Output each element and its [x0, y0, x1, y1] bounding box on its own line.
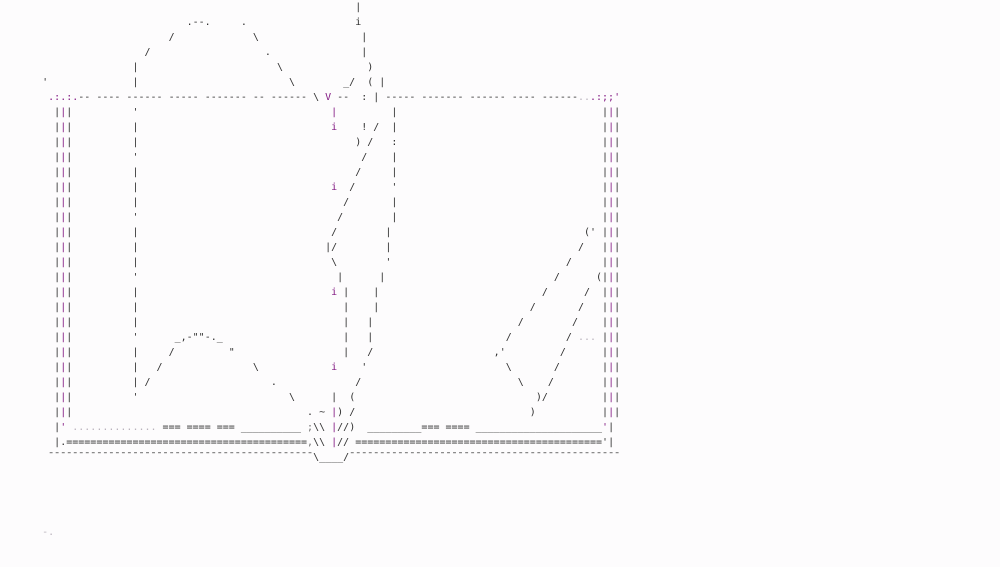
art-glyph: ----- ------- ------ ---- ------ [385, 90, 578, 105]
art-row: |\'/|||||| [0, 255, 1000, 270]
art-row [0, 510, 1000, 525]
art-glyph: ( [349, 390, 355, 405]
art-row: |'..............=== ==== ===__________;\… [0, 420, 1000, 435]
art-glyph: | [66, 210, 72, 225]
art-glyph: | [132, 135, 138, 150]
art-glyph: | [132, 180, 138, 195]
art-glyph: / [169, 345, 175, 360]
art-row: .:.:.-- ---- ------ ----- ------- -- ---… [0, 90, 1000, 105]
art-glyph: === ==== [421, 420, 469, 435]
screen: |.--..i/\|/.||\)'|\_/(|.:.:.-- ---- ----… [0, 0, 1000, 567]
art-row: |/||||||| [0, 195, 1000, 210]
art-glyph: ) [367, 60, 373, 75]
art-glyph: / [331, 225, 337, 240]
art-glyph: \ [277, 60, 283, 75]
art-glyph: _/ [343, 75, 355, 90]
art-glyph: / [578, 240, 584, 255]
art-glyph: : [361, 90, 367, 105]
art-glyph: . [241, 15, 247, 30]
art-row: -. [0, 525, 1000, 540]
art-glyph: | [66, 375, 72, 390]
art-row: |/"|/,'/|||||| [0, 345, 1000, 360]
art-glyph: / [584, 285, 590, 300]
art-glyph: \ [331, 255, 337, 270]
art-glyph: // [337, 420, 349, 435]
art-glyph: | [361, 30, 367, 45]
art-glyph: / [542, 285, 548, 300]
art-glyph: | [132, 285, 138, 300]
art-row: '|||||||| [0, 105, 1000, 120]
art-row: |||//|||||| [0, 300, 1000, 315]
art-row: /\| [0, 30, 1000, 45]
art-glyph: | [66, 345, 72, 360]
art-glyph: / [518, 315, 524, 330]
art-glyph: / [361, 150, 367, 165]
art-row [0, 465, 1000, 480]
art-glyph: | [132, 75, 138, 90]
art-glyph: | [337, 270, 343, 285]
art-row: |/||||||| [0, 165, 1000, 180]
art-glyph: | [373, 90, 379, 105]
art-glyph: ' [361, 360, 367, 375]
art-glyph: | [385, 225, 391, 240]
art-glyph: . [265, 45, 271, 60]
art-glyph: ) [349, 420, 355, 435]
art-row: |\) [0, 60, 1000, 75]
art-glyph: \ [518, 375, 524, 390]
art-glyph: i [331, 285, 337, 300]
art-glyph: | [132, 195, 138, 210]
art-glyph: ' [60, 420, 66, 435]
art-glyph: | [608, 420, 614, 435]
art-row: |i/'|||||| [0, 180, 1000, 195]
art-glyph: | [66, 405, 72, 420]
art-glyph: | [614, 195, 620, 210]
art-glyph: | [614, 180, 620, 195]
art-row: |/./\/|||||| [0, 375, 1000, 390]
art-glyph: .:.:. [48, 90, 78, 105]
art-glyph: | [614, 360, 620, 375]
art-glyph: | [614, 270, 620, 285]
art-glyph: | [391, 210, 397, 225]
art-glyph: / [554, 360, 560, 375]
art-glyph: | [66, 255, 72, 270]
art-glyph: V [325, 90, 331, 105]
art-glyph: .:;;' [590, 90, 620, 105]
art-glyph: | [132, 240, 138, 255]
art-glyph: / [343, 195, 349, 210]
art-glyph: | [66, 120, 72, 135]
art-glyph: / [355, 165, 361, 180]
art-glyph: _____________________ [476, 420, 602, 435]
art-glyph: i [331, 120, 337, 135]
art-glyph: | [391, 150, 397, 165]
art-glyph: ' [42, 75, 48, 90]
art-glyph: | [132, 255, 138, 270]
art-glyph: | [66, 240, 72, 255]
art-glyph: === ==== === [163, 420, 235, 435]
art-glyph: )/ [536, 390, 548, 405]
art-glyph: | [66, 330, 72, 345]
art-glyph: ) [337, 405, 343, 420]
art-row [0, 540, 1000, 555]
art-glyph: | [373, 300, 379, 315]
art-glyph: | [66, 105, 72, 120]
art-row [0, 495, 1000, 510]
art-row: '_,-""-._||//...|||||| [0, 330, 1000, 345]
art-glyph: | [132, 315, 138, 330]
art-glyph: _________ [367, 420, 421, 435]
art-glyph: | [614, 120, 620, 135]
art-glyph: / [157, 360, 163, 375]
art-glyph: | [391, 165, 397, 180]
art-glyph: \ [253, 360, 259, 375]
art-glyph: | [343, 300, 349, 315]
art-row: |.======================================… [0, 435, 1000, 450]
art-glyph: | [343, 315, 349, 330]
art-glyph: | [66, 390, 72, 405]
art-glyph: | [66, 360, 72, 375]
art-glyph: | [614, 165, 620, 180]
art-glyph: / [506, 330, 512, 345]
art-glyph: | [614, 405, 620, 420]
art-glyph: | [343, 345, 349, 360]
art-glyph: | [66, 270, 72, 285]
art-glyph: | [614, 210, 620, 225]
art-row: '|\_/(| [0, 75, 1000, 90]
art-glyph: | [132, 60, 138, 75]
art-glyph: ~ [319, 405, 325, 420]
art-glyph: \ [313, 90, 319, 105]
art-row: |||//|||||| [0, 315, 1000, 330]
art-glyph: | [385, 240, 391, 255]
art-glyph: | [132, 360, 138, 375]
art-glyph: | [132, 345, 138, 360]
ascii-art-open-book: |.--..i/\|/.||\)'|\_/(|.:.:.-- ---- ----… [0, 0, 1000, 567]
art-glyph: ' [385, 255, 391, 270]
art-glyph: / [530, 300, 536, 315]
art-glyph: / [169, 30, 175, 45]
art-glyph: . [271, 375, 277, 390]
art-glyph: (' [584, 225, 596, 240]
art-glyph: | [343, 285, 349, 300]
art-glyph: ' [391, 180, 397, 195]
art-glyph: / [337, 210, 343, 225]
art-glyph: ' [132, 105, 138, 120]
art-glyph: | [343, 330, 349, 345]
art-glyph: | [614, 315, 620, 330]
art-glyph: / [560, 345, 566, 360]
art-glyph: / [578, 300, 584, 315]
art-glyph: | [355, 0, 361, 15]
art-glyph: ' [132, 390, 138, 405]
art-glyph: / [554, 270, 560, 285]
art-glyph: ¯¯¯¯¯¯¯¯¯¯¯¯¯¯¯¯¯¯¯¯¯¯¯¯¯¯¯¯¯¯¯¯¯¯¯¯¯¯¯¯… [48, 450, 313, 465]
art-glyph: | [614, 330, 620, 345]
art-glyph: / [373, 120, 379, 135]
art-glyph: \ [319, 435, 325, 450]
art-glyph: / [355, 375, 361, 390]
art-glyph: | [391, 105, 397, 120]
art-glyph: | [373, 285, 379, 300]
art-row: | [0, 0, 1000, 15]
art-glyph: ======================================== [66, 435, 307, 450]
art-glyph: | [367, 315, 373, 330]
art-glyph: -- ---- ------ ----- ------- -- ------ [78, 90, 307, 105]
art-row: /.| [0, 45, 1000, 60]
art-glyph: ) [355, 135, 361, 150]
art-glyph: | [66, 300, 72, 315]
art-glyph: / [144, 375, 150, 390]
art-glyph: | [614, 225, 620, 240]
art-glyph: ' [132, 330, 138, 345]
art-row [0, 555, 1000, 567]
art-glyph: | [614, 375, 620, 390]
art-glyph: _,-""-._ [175, 330, 223, 345]
art-glyph: ' [132, 150, 138, 165]
art-row: '\|()/|||||| [0, 390, 1000, 405]
art-glyph: | [391, 195, 397, 210]
art-glyph: | [66, 225, 72, 240]
art-glyph: | [361, 45, 367, 60]
art-glyph: | [132, 225, 138, 240]
art-glyph: ' [132, 270, 138, 285]
art-row: |/|('|||||| [0, 225, 1000, 240]
art-glyph: | [331, 105, 337, 120]
art-glyph: | [132, 165, 138, 180]
art-glyph: | [614, 150, 620, 165]
art-glyph: / [566, 330, 572, 345]
art-glyph: | [608, 435, 614, 450]
art-glyph: .--. [187, 15, 211, 30]
art-glyph: -- [337, 90, 349, 105]
art-glyph: \ [289, 390, 295, 405]
art-glyph: | [614, 300, 620, 315]
art-glyph: ,' [494, 345, 506, 360]
art-glyph: | [614, 390, 620, 405]
art-glyph: | [66, 180, 72, 195]
art-glyph: / [548, 375, 554, 390]
art-glyph: | [379, 270, 385, 285]
art-row [0, 480, 1000, 495]
art-glyph: |/ [325, 240, 337, 255]
art-row: '/||||||| [0, 210, 1000, 225]
art-glyph: | [66, 150, 72, 165]
art-row: |)/:|||||| [0, 135, 1000, 150]
art-glyph: | [66, 195, 72, 210]
art-glyph: // [337, 435, 349, 450]
art-glyph: ' [132, 210, 138, 225]
art-glyph: \ [289, 75, 295, 90]
art-row: .--..i [0, 15, 1000, 30]
art-glyph: | [66, 315, 72, 330]
art-glyph: | [66, 135, 72, 150]
art-glyph: | [132, 375, 138, 390]
art-glyph: __________ [241, 420, 301, 435]
art-glyph: | [614, 345, 620, 360]
art-row: ||/|/|||||| [0, 240, 1000, 255]
art-glyph: | [614, 135, 620, 150]
art-glyph: | [367, 330, 373, 345]
art-glyph: / [144, 45, 150, 60]
art-glyph: i [331, 180, 337, 195]
art-glyph: . [307, 405, 313, 420]
art-glyph: : [391, 135, 397, 150]
art-glyph: / [349, 180, 355, 195]
art-glyph: .. [578, 90, 590, 105]
art-glyph: | [132, 300, 138, 315]
art-row: |i!/||||||| [0, 120, 1000, 135]
art-glyph: / [572, 315, 578, 330]
art-row: '/||||||| [0, 150, 1000, 165]
art-glyph: ( [367, 75, 373, 90]
art-glyph: ¯¯¯¯¯¯¯¯¯¯¯¯¯¯¯¯¯¯¯¯¯¯¯¯¯¯¯¯¯¯¯¯¯¯¯¯¯¯¯¯… [349, 450, 620, 465]
art-glyph: \\ [313, 420, 325, 435]
art-glyph: ! [361, 120, 367, 135]
art-row: .~|)/)|||||| [0, 405, 1000, 420]
art-row: ¯¯¯¯¯¯¯¯¯¯¯¯¯¯¯¯¯¯¯¯¯¯¯¯¯¯¯¯¯¯¯¯¯¯¯¯¯¯¯¯… [0, 450, 1000, 465]
art-glyph: | [614, 255, 620, 270]
art-glyph: / [367, 345, 373, 360]
art-glyph: / [566, 255, 572, 270]
art-glyph: ) [530, 405, 536, 420]
art-glyph: | [391, 120, 397, 135]
art-glyph: ____ [319, 450, 343, 465]
art-glyph: | [66, 165, 72, 180]
art-glyph: i [355, 15, 361, 30]
art-glyph: \ [506, 360, 512, 375]
art-glyph: | [132, 120, 138, 135]
art-glyph: / [349, 405, 355, 420]
art-glyph: | [614, 240, 620, 255]
art-glyph: | [66, 285, 72, 300]
art-glyph: / [367, 135, 373, 150]
art-glyph: \ [253, 30, 259, 45]
art-row: '||/(|||||| [0, 270, 1000, 285]
art-glyph: | [614, 285, 620, 300]
art-glyph: ========================================… [355, 435, 602, 450]
art-row: |i||//|||||| [0, 285, 1000, 300]
art-glyph: | [379, 75, 385, 90]
art-glyph: | [614, 105, 620, 120]
art-glyph: ... [578, 330, 596, 345]
art-glyph: .............. [72, 420, 156, 435]
art-glyph: " [229, 345, 235, 360]
art-glyph: i [331, 360, 337, 375]
art-glyph: -. [42, 525, 54, 540]
art-glyph: | [331, 390, 337, 405]
art-row: |/\i'\/|||||| [0, 360, 1000, 375]
